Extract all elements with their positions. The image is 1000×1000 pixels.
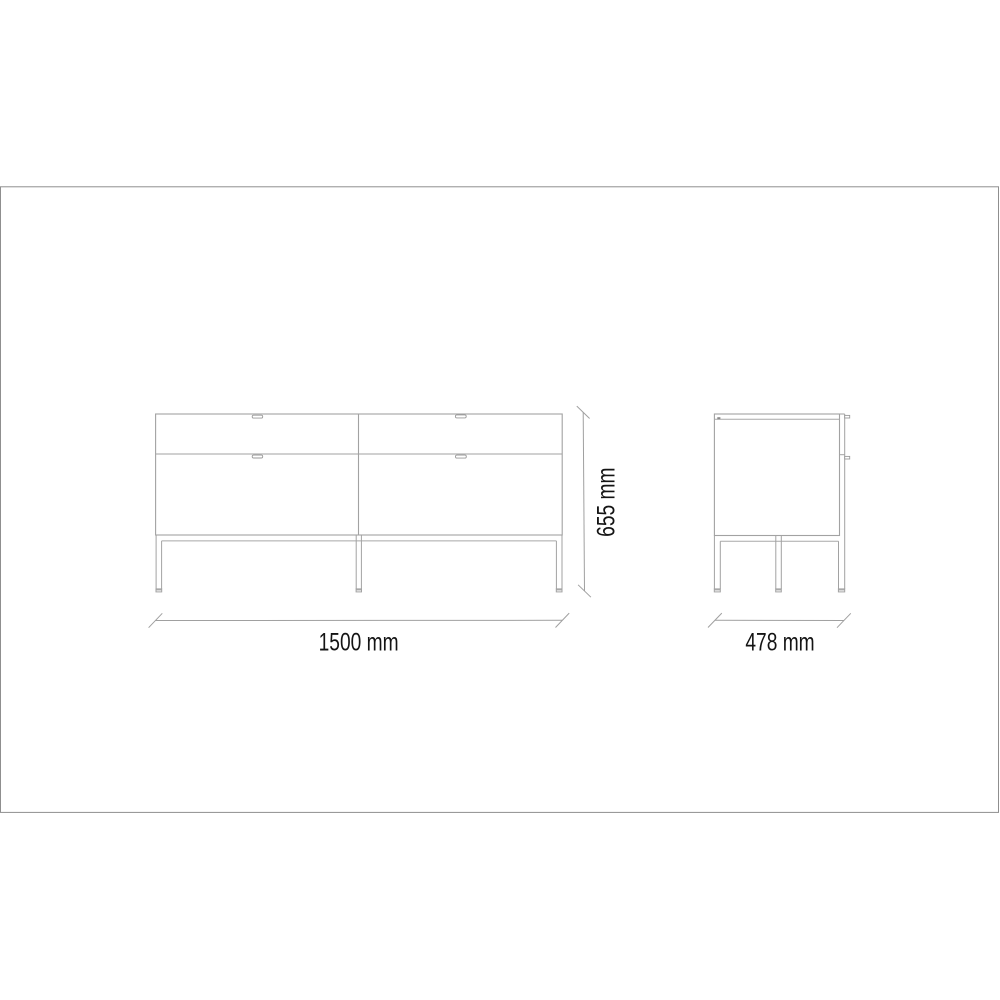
- svg-text:478 mm: 478 mm: [745, 628, 814, 656]
- svg-text:1500 mm: 1500 mm: [319, 628, 399, 656]
- svg-text:655 mm: 655 mm: [592, 468, 620, 537]
